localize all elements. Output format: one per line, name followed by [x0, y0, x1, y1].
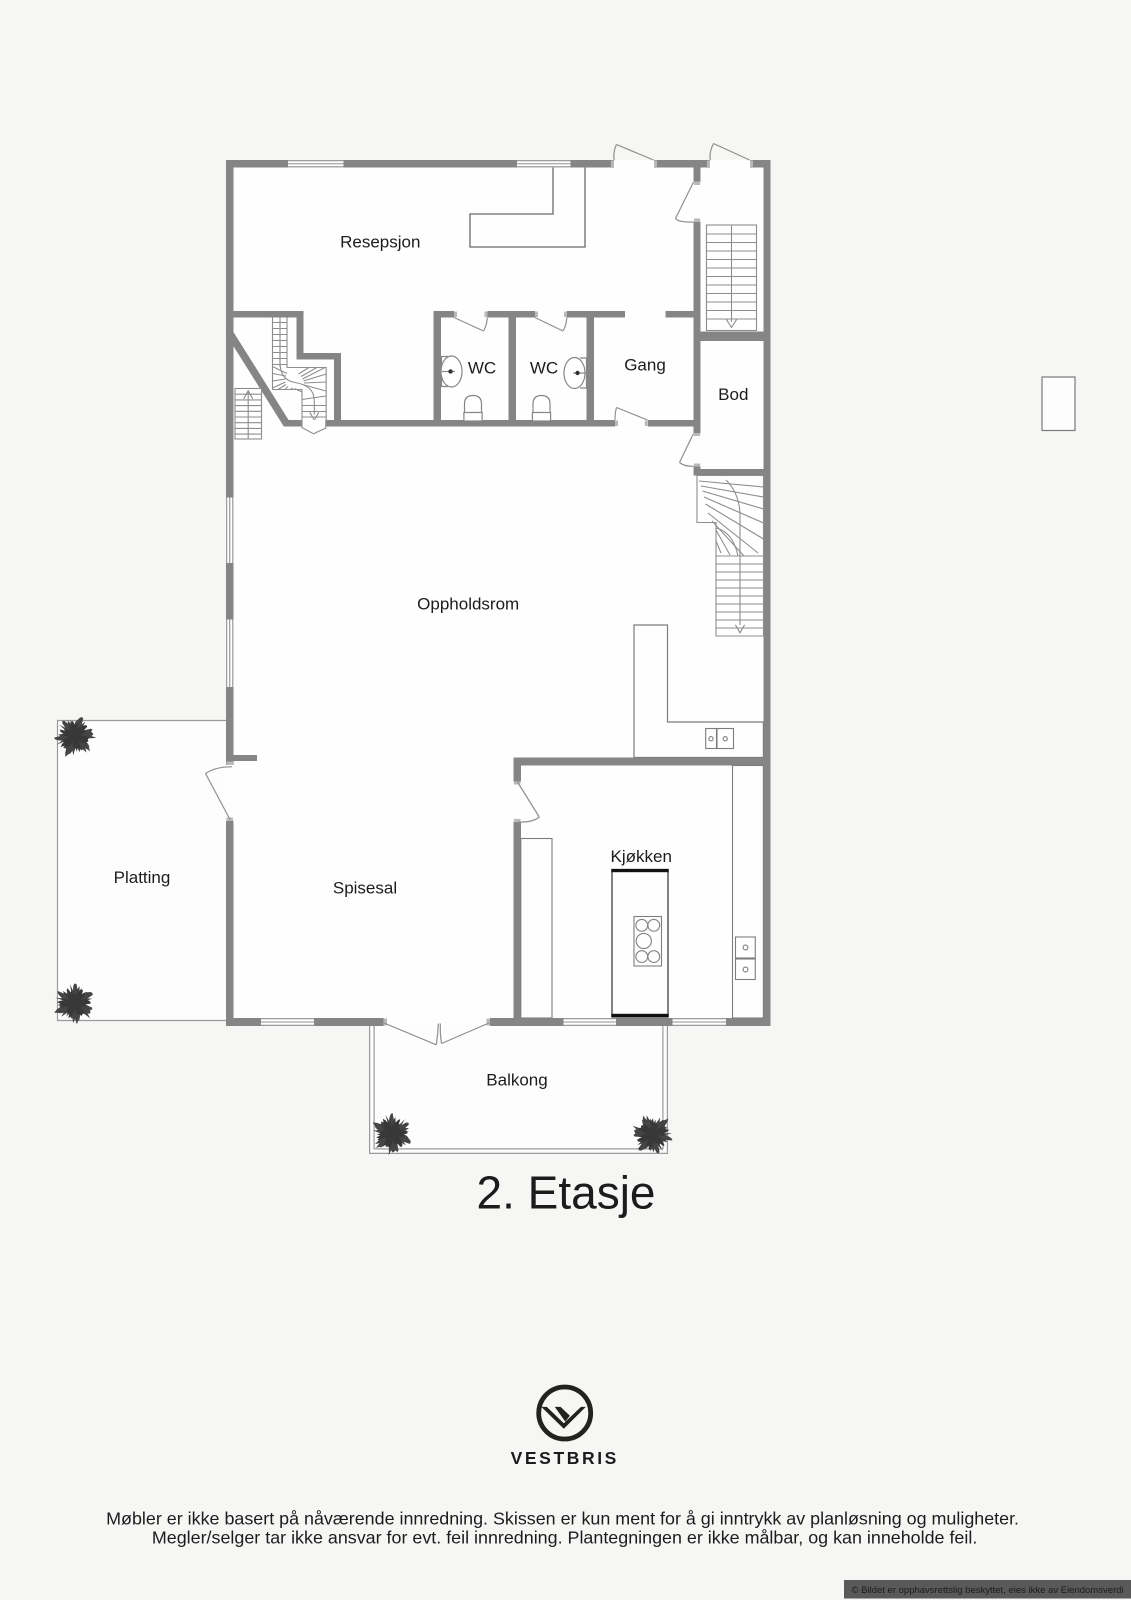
svg-text:Megler/selger tar ikke ansvar: Megler/selger tar ikke ansvar for evt. f…	[152, 1528, 977, 1548]
svg-text:Gang: Gang	[624, 356, 666, 375]
svg-text:Kjøkken: Kjøkken	[610, 847, 671, 866]
svg-text:2. Etasje: 2. Etasje	[477, 1167, 656, 1219]
svg-text:© Bildet er opphavsrettslig be: © Bildet er opphavsrettslig beskyttet, e…	[852, 1585, 1124, 1596]
svg-text:Balkong: Balkong	[486, 1071, 547, 1090]
svg-text:Møbler er ikke basert på nåvær: Møbler er ikke basert på nåværende innre…	[106, 1509, 1019, 1529]
svg-text:Oppholdsrom: Oppholdsrom	[417, 595, 519, 614]
svg-text:Spisesal: Spisesal	[333, 879, 397, 898]
svg-text:Bod: Bod	[718, 385, 748, 404]
svg-text:Platting: Platting	[114, 868, 171, 887]
svg-text:Resepsjon: Resepsjon	[340, 233, 420, 252]
svg-text:VESTBRIS: VESTBRIS	[511, 1448, 619, 1468]
svg-text:WC: WC	[468, 359, 496, 378]
svg-text:WC: WC	[530, 359, 558, 378]
